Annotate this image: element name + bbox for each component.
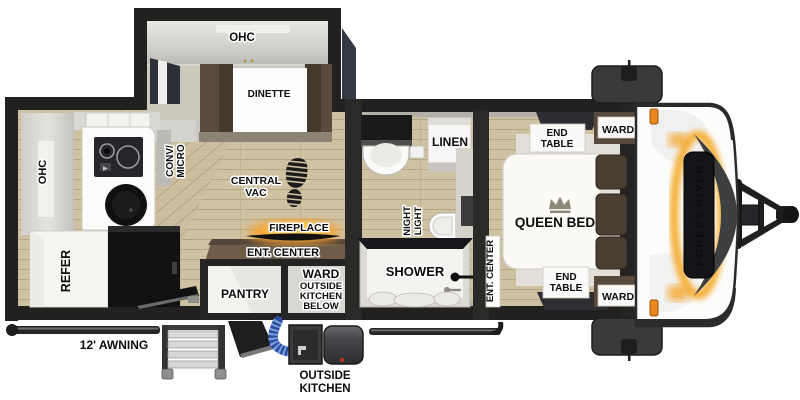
svg-text:DINETTE: DINETTE (248, 89, 291, 100)
svg-text:WARD: WARD (602, 291, 634, 303)
svg-text:VAC: VAC (245, 187, 267, 199)
svg-text:OHC: OHC (37, 160, 49, 185)
svg-text:CONV/: CONV/ (165, 145, 176, 177)
svg-text:TABLE: TABLE (550, 283, 583, 294)
svg-text:MICRO: MICRO (176, 144, 187, 178)
svg-text:KITCHEN: KITCHEN (299, 383, 350, 395)
svg-text:OUTSIDE: OUTSIDE (299, 370, 350, 382)
svg-text:FOREST RIVER: FOREST RIVER (694, 164, 706, 266)
svg-text:ENT. CENTER: ENT. CENTER (247, 247, 319, 259)
svg-text:LINEN: LINEN (432, 135, 468, 149)
svg-text:12' AWNING: 12' AWNING (80, 338, 148, 352)
svg-text:FIREPLACE: FIREPLACE (269, 222, 329, 234)
svg-text:WARD: WARD (602, 124, 634, 136)
svg-text:QUEEN BED: QUEEN BED (515, 215, 596, 230)
svg-text:TABLE: TABLE (541, 139, 574, 150)
svg-text:CENTRAL: CENTRAL (231, 175, 282, 187)
svg-text:END: END (555, 272, 576, 283)
svg-text:WARD: WARD (303, 267, 340, 281)
svg-text:END: END (546, 128, 567, 139)
svg-text:OHC: OHC (229, 32, 255, 44)
svg-text:LIGHT: LIGHT (413, 207, 424, 236)
svg-text:NIGHT: NIGHT (402, 206, 413, 236)
svg-text:PANTRY: PANTRY (221, 287, 269, 301)
svg-text:ENT. CENTER: ENT. CENTER (485, 240, 496, 302)
svg-text:REFER: REFER (59, 250, 73, 292)
svg-text:BELOW: BELOW (303, 301, 338, 312)
svg-text:SHOWER: SHOWER (386, 264, 445, 279)
